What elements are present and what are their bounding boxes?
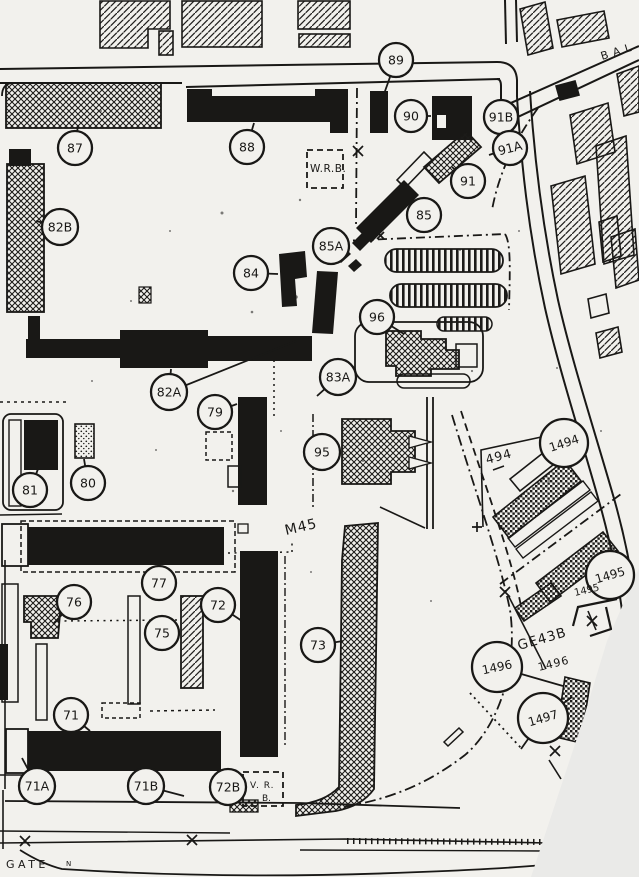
building-79 <box>238 397 267 505</box>
svg-text:95: 95 <box>314 445 330 460</box>
svg-text:85: 85 <box>416 208 432 223</box>
svg-text:81: 81 <box>22 483 38 498</box>
svg-text:89: 89 <box>388 53 404 68</box>
svg-text:90: 90 <box>403 109 419 124</box>
building-80 <box>75 424 94 458</box>
map-label: V. R. <box>250 781 275 791</box>
svg-text:79: 79 <box>207 405 223 420</box>
map-label: GATE <box>6 858 49 871</box>
svg-text:80: 80 <box>80 476 96 491</box>
svg-text:71A: 71A <box>25 779 50 794</box>
site-plan-map: 8788899091B91A9182B8585A849682A83A799580… <box>0 0 639 877</box>
building-marker-1494: 1494 <box>540 419 588 467</box>
svg-text:77: 77 <box>151 576 167 591</box>
svg-text:85A: 85A <box>319 239 344 254</box>
building-71 <box>28 731 221 771</box>
svg-text:82A: 82A <box>157 385 182 400</box>
building-82a <box>120 330 208 368</box>
map-label: B. <box>262 794 271 804</box>
building-marker-75: 75 <box>145 616 180 650</box>
map-label: N <box>66 860 71 868</box>
building-77 <box>28 527 224 565</box>
svg-text:73: 73 <box>310 638 326 653</box>
svg-text:96: 96 <box>369 310 385 325</box>
svg-text:91: 91 <box>460 174 476 189</box>
svg-text:75: 75 <box>154 626 170 641</box>
building-marker-85: 85 <box>407 198 441 232</box>
building-72 <box>240 551 278 757</box>
building-82b <box>7 164 44 312</box>
building-87 <box>6 83 161 128</box>
building-marker-91B: 91B <box>483 100 518 134</box>
svg-text:72: 72 <box>210 598 226 613</box>
building-marker-77: 77 <box>142 566 176 600</box>
building-marker-71: 71 <box>54 698 90 732</box>
svg-text:76: 76 <box>66 595 82 610</box>
building-marker-72B: 72B <box>210 769 246 805</box>
svg-text:71B: 71B <box>134 779 158 794</box>
building-marker-85A: 85A <box>313 228 349 264</box>
svg-text:83A: 83A <box>326 370 351 385</box>
svg-text:87: 87 <box>67 141 83 156</box>
svg-text:84: 84 <box>243 266 259 281</box>
svg-text:88: 88 <box>239 140 255 155</box>
svg-text:71: 71 <box>63 708 79 723</box>
svg-text:91B: 91B <box>489 110 513 125</box>
map-label: W.R.B. <box>310 163 346 175</box>
building-marker-91: 91 <box>451 164 485 198</box>
svg-text:72B: 72B <box>216 780 240 795</box>
building-81 <box>24 420 58 470</box>
svg-text:82B: 82B <box>48 220 72 235</box>
building-marker-95: 95 <box>304 434 341 470</box>
building-75 <box>181 596 203 688</box>
scanned-site-plan-page: 8788899091B91A9182B8585A849682A83A799580… <box>0 0 639 877</box>
